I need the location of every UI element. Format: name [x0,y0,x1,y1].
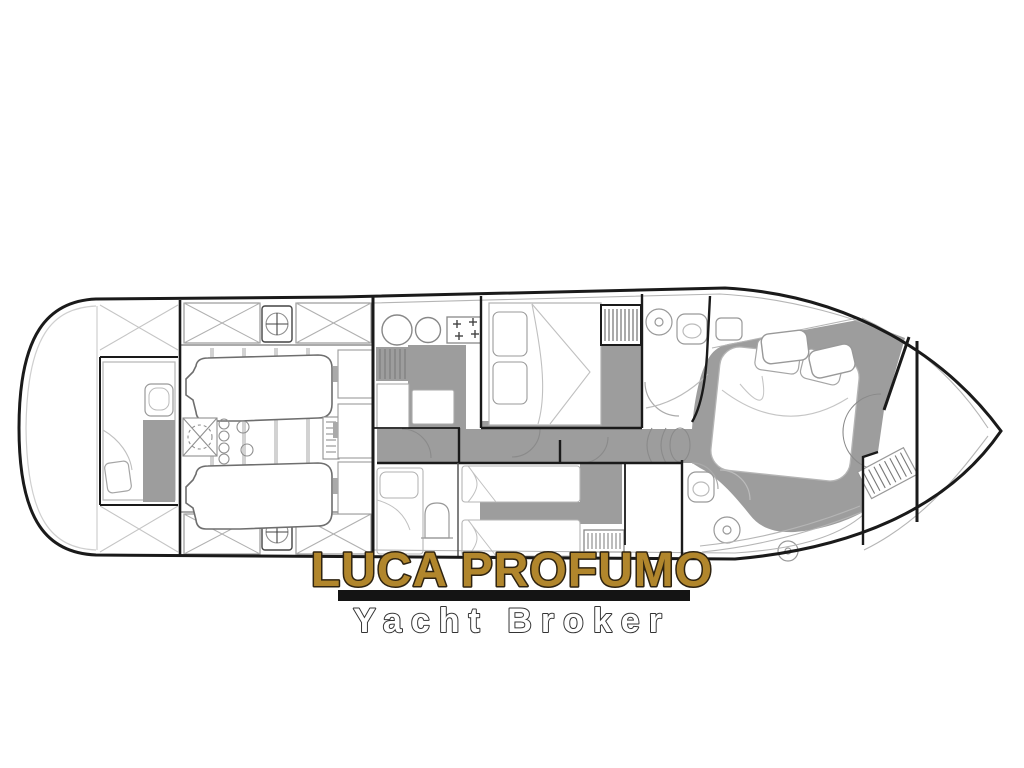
platform-inner-line [26,306,96,550]
engine-starboard [186,463,332,529]
vip-pillow [493,312,527,356]
toilet [688,472,714,502]
guest-entry [580,464,622,524]
floorplan-drawing: LUCA PROFUMO Yacht Broker [0,0,1024,768]
galley-cabinet [377,384,409,428]
brand-divider [338,590,690,601]
port-aft-cabin [377,468,453,554]
galley-island [412,390,454,424]
watermark: LUCA PROFUMO Yacht Broker [311,544,713,640]
yacht-floorplan-page: LUCA PROFUMO Yacht Broker [0,0,1024,768]
crew-cabin [100,305,178,552]
vip-pillow [493,362,527,404]
brand-subtitle: Yacht Broker [353,602,671,640]
bathroom-sink [714,517,740,543]
swim-platform [26,306,97,550]
corridor-floor [377,429,642,463]
small-pillow [380,472,418,498]
galley-sink-large [382,315,412,345]
crew-wardrobe-top [143,420,175,502]
midship-storage [333,350,372,514]
stove [447,317,481,343]
brand-name: LUCA PROFUMO [311,544,713,597]
crew-pillow [104,460,132,493]
hull-window [760,329,809,364]
galley-sink-small [416,318,441,343]
washbasin [425,503,449,538]
cabinet [716,318,742,340]
guest-bed [462,466,580,502]
deck-strip-top [180,303,373,345]
engine-room-center [183,417,339,464]
bathroom-sink [646,309,672,335]
engine-port [186,355,332,421]
toilet [677,314,707,344]
